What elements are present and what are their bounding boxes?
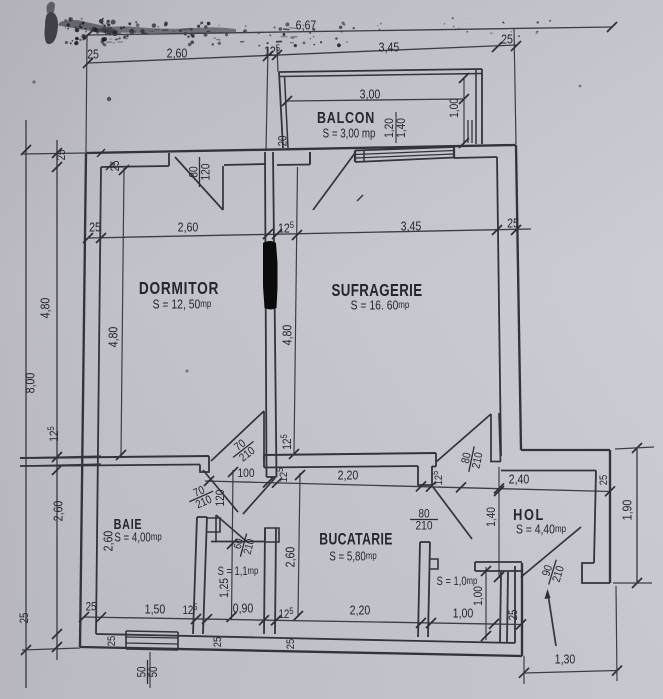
svg-text:2,20: 2,20 (338, 469, 359, 483)
svg-text:120: 120 (200, 163, 213, 180)
svg-text:S = 5,80mp: S = 5,80mp (329, 550, 376, 563)
svg-text:2,60: 2,60 (178, 221, 199, 235)
svg-text:25: 25 (598, 475, 610, 486)
svg-text:S = 3,00 mp: S = 3,00 mp (323, 127, 376, 140)
svg-text:S = 4,40mp: S = 4,40mp (516, 522, 566, 536)
svg-text:1,25: 1,25 (218, 578, 231, 598)
svg-text:125: 125 (46, 426, 62, 442)
svg-text:4,80: 4,80 (281, 325, 295, 346)
svg-text:2,60: 2,60 (102, 531, 116, 552)
svg-text:1,40: 1,40 (485, 507, 498, 527)
svg-text:BUCATARIE: BUCATARIE (319, 531, 392, 549)
svg-text:1,00: 1,00 (453, 607, 474, 621)
svg-text:3,45: 3,45 (401, 220, 422, 234)
svg-text:2,60: 2,60 (284, 547, 298, 568)
svg-text:1,20: 1,20 (383, 118, 396, 138)
svg-text:210: 210 (415, 520, 432, 533)
svg-text:25: 25 (507, 217, 519, 231)
svg-text:S = 12, 50mp: S = 12, 50mp (153, 297, 212, 311)
svg-text:25: 25 (212, 637, 224, 648)
svg-text:25: 25 (285, 639, 297, 650)
svg-text:1,40: 1,40 (395, 118, 408, 138)
svg-text:25: 25 (87, 48, 99, 62)
svg-text:25: 25 (55, 150, 68, 161)
svg-text:25: 25 (106, 636, 118, 647)
svg-text:4,80: 4,80 (39, 298, 53, 319)
svg-text:125: 125 (278, 606, 293, 622)
svg-text:S = 1,0mp: S = 1,0mp (437, 575, 478, 588)
svg-text:2,20: 2,20 (350, 604, 371, 618)
svg-text:100: 100 (237, 467, 254, 480)
svg-text:6,67: 6,67 (296, 19, 317, 33)
svg-text:20: 20 (277, 136, 290, 147)
svg-text:25: 25 (86, 601, 97, 614)
svg-text:S = 16. 60mp: S = 16. 60mp (351, 298, 410, 312)
svg-text:S = 1,1mp: S = 1,1mp (218, 565, 259, 578)
svg-text:8,00: 8,00 (24, 373, 38, 394)
svg-text:S = 4,00mp: S = 4,00mp (114, 531, 161, 544)
svg-text:3,00: 3,00 (360, 88, 381, 102)
svg-text:125: 125 (278, 220, 294, 236)
svg-text:BAIE: BAIE (114, 515, 143, 532)
svg-text:25: 25 (109, 161, 122, 172)
svg-text:1,00: 1,00 (448, 98, 461, 118)
svg-text:1,50: 1,50 (145, 603, 166, 617)
svg-text:4,80: 4,80 (107, 327, 121, 348)
svg-text:0,90: 0,90 (233, 602, 254, 616)
svg-text:1,00: 1,00 (472, 586, 485, 606)
svg-text:2,60: 2,60 (167, 47, 188, 61)
svg-text:1,30: 1,30 (555, 653, 576, 667)
svg-text:25: 25 (501, 33, 513, 47)
svg-text:2,60: 2,60 (52, 501, 66, 522)
svg-text:25: 25 (507, 610, 520, 621)
svg-text:25: 25 (89, 221, 101, 235)
svg-text:125: 125 (279, 434, 295, 450)
svg-text:2,40: 2,40 (509, 473, 530, 487)
svg-text:DORMITOR: DORMITOR (139, 279, 219, 298)
svg-text:1,90: 1,90 (621, 500, 635, 521)
svg-text:25: 25 (18, 613, 31, 624)
svg-text:125: 125 (182, 602, 197, 618)
svg-text:BALCON: BALCON (317, 110, 375, 128)
svg-text:3,45: 3,45 (379, 41, 400, 55)
